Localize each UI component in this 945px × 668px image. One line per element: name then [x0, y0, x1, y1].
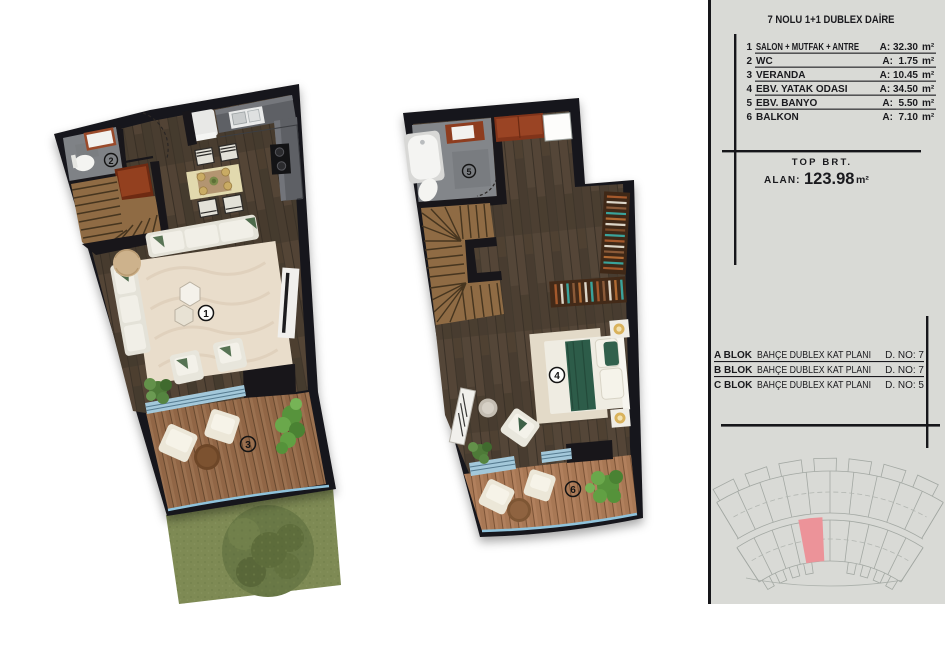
- svg-text:EBV. YATAK ODASI: EBV. YATAK ODASI: [756, 84, 848, 95]
- svg-text:2: 2: [108, 156, 113, 166]
- svg-text:A: 7.10: A: 7.10: [882, 112, 918, 123]
- svg-text:2: 2: [746, 56, 752, 67]
- svg-text:6: 6: [570, 485, 576, 496]
- svg-text:D. NO: 5: D. NO: 5: [885, 380, 924, 391]
- svg-text:6: 6: [746, 112, 752, 123]
- svg-text:ALAN:: ALAN:: [764, 175, 801, 186]
- svg-text:m²: m²: [922, 112, 935, 123]
- svg-text:m²: m²: [856, 174, 869, 186]
- svg-text:1: 1: [203, 309, 209, 320]
- svg-text:7 NOLU 1+1 DUBLEX DAİRE: 7 NOLU 1+1 DUBLEX DAİRE: [768, 13, 895, 26]
- svg-text:m²: m²: [922, 56, 935, 67]
- svg-text:123.98: 123.98: [804, 170, 854, 188]
- svg-text:A: 34.50: A: 34.50: [880, 84, 919, 95]
- svg-text:A BLOK: A BLOK: [714, 350, 753, 361]
- svg-text:A: 10.45: A: 10.45: [880, 70, 919, 81]
- svg-text:A: 5.50: A: 5.50: [882, 98, 918, 109]
- svg-text:4: 4: [554, 371, 560, 382]
- svg-text:BAHÇE DUBLEX KAT PLANI: BAHÇE DUBLEX KAT PLANI: [757, 350, 871, 361]
- svg-text:D. NO: 7: D. NO: 7: [885, 365, 924, 376]
- svg-text:m²: m²: [922, 70, 935, 81]
- svg-text:SALON + MUTFAK + ANTRE: SALON + MUTFAK + ANTRE: [756, 42, 859, 53]
- svg-text:1: 1: [746, 42, 752, 53]
- svg-text:C BLOK: C BLOK: [714, 380, 753, 391]
- svg-text:5: 5: [746, 98, 752, 109]
- svg-text:4: 4: [746, 84, 752, 95]
- svg-text:BAHÇE DUBLEX KAT PLANI: BAHÇE DUBLEX KAT PLANI: [757, 365, 871, 376]
- svg-text:BAHÇE DUBLEX KAT PLANI: BAHÇE DUBLEX KAT PLANI: [757, 380, 871, 391]
- svg-text:m²: m²: [922, 84, 935, 95]
- svg-text:5: 5: [466, 167, 471, 177]
- svg-text:m²: m²: [922, 98, 935, 109]
- svg-text:3: 3: [245, 440, 251, 451]
- svg-text:VERANDA: VERANDA: [756, 70, 805, 81]
- svg-text:EBV. BANYO: EBV. BANYO: [756, 98, 818, 109]
- svg-text:WC: WC: [756, 56, 773, 67]
- svg-text:D. NO: 7: D. NO: 7: [885, 350, 924, 361]
- svg-text:BALKON: BALKON: [756, 112, 799, 123]
- svg-text:A: 1.75: A: 1.75: [882, 56, 918, 67]
- svg-text:3: 3: [746, 70, 752, 81]
- svg-text:B BLOK: B BLOK: [714, 365, 753, 376]
- svg-text:m²: m²: [922, 42, 935, 53]
- svg-text:A: 32.30: A: 32.30: [880, 42, 919, 53]
- svg-text:TOP BRT.: TOP BRT.: [792, 157, 853, 168]
